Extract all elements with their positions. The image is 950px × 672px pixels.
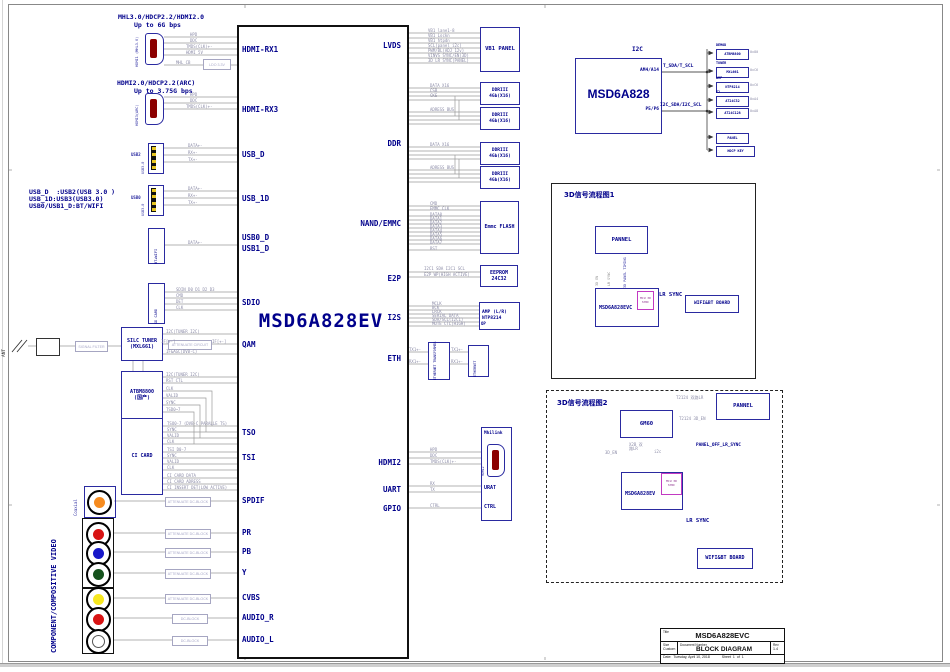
ant-label: ANT bbox=[2, 349, 7, 357]
pin-usb0-d: USB0_D bbox=[242, 233, 269, 242]
ddr-block-1: DDRIII4Gb(X16) bbox=[480, 82, 520, 105]
ci-card-block: CI CARD bbox=[121, 418, 163, 495]
pin-pr: PR bbox=[242, 528, 251, 537]
i2c-title: I2C bbox=[632, 46, 643, 53]
wire-label: SYNC bbox=[167, 427, 177, 432]
flow2-lr-sync-label: LR SYNC bbox=[686, 518, 709, 524]
i2c-device-ntp8214: NTP8214 bbox=[716, 82, 749, 93]
wire-label: CI CARD ADRESS bbox=[167, 479, 201, 484]
i2c-hdcp-key-block: HDCP KEY bbox=[716, 146, 755, 157]
pin-sdio: SDIO bbox=[242, 298, 260, 307]
hdmi1-tag: HDMI1 (MHL3.0) bbox=[135, 37, 139, 67]
i2c-device-at24c32: AT24C32 bbox=[716, 96, 749, 107]
wire-label: DATA7 bbox=[430, 240, 442, 245]
pin-spdif: SPDIF bbox=[242, 496, 265, 505]
attenuate-box-spdif: ATTENUATE DC-BLOCK bbox=[165, 497, 211, 507]
ddr-block-4: DDRIII4Gb(X16) bbox=[480, 166, 520, 189]
pin-pb: PB bbox=[242, 547, 251, 556]
pin-nand-emmc: NAND/EMMC bbox=[355, 219, 401, 228]
flow2-u2-label: X2B 双路LR bbox=[629, 443, 645, 452]
wire-label: EMMC CLK bbox=[430, 206, 449, 211]
wire-label: SYNC bbox=[166, 400, 176, 405]
document-cell: Document Number BLOCK DIAGRAM bbox=[678, 642, 770, 654]
i2c-device-atbm8800: ATBM8800 bbox=[716, 49, 749, 60]
wire-label: I2C(TUNER I2C) bbox=[166, 329, 200, 334]
sdcard-connector: SD CARD bbox=[148, 283, 165, 324]
pin-e2p: E2P bbox=[355, 274, 401, 283]
pin-tsi: TSI bbox=[242, 453, 256, 462]
pin-audio-r: AUDIO_R bbox=[242, 613, 274, 622]
wire-label: TMDS(CLK)+- bbox=[430, 459, 457, 464]
i2c-bus-a-label: T_SDA/T_SCL bbox=[663, 64, 693, 69]
attenuate-box-pb: ATTENUATE DC-BLOCK bbox=[165, 548, 211, 558]
i2c-device-addr: 0xA4 bbox=[750, 97, 758, 101]
pin-tso: TSO bbox=[242, 428, 256, 437]
antenna-input-box bbox=[36, 338, 60, 356]
mhilink-label: Mhilink bbox=[484, 431, 503, 436]
eeprom-block: EEPROM24C32 bbox=[480, 265, 518, 287]
wire-label: CTRL bbox=[430, 503, 440, 508]
wire-label: TX+- bbox=[188, 200, 198, 205]
flow1-down-label: 3D PANEL TIMING bbox=[623, 257, 627, 288]
title-block-row3: Date: Tuesday, April 10, 2018 Sheet 1 of… bbox=[661, 655, 784, 663]
wire-label: RX1+- bbox=[451, 359, 463, 364]
i2c-device-at24c128: AT24C128 bbox=[716, 108, 749, 119]
i2c-device-addr: 0xC6 bbox=[750, 68, 758, 72]
wire-label: RX bbox=[430, 481, 435, 486]
wire-label: E2P WP(HIGH ACTIVE) bbox=[424, 272, 470, 277]
wire-label: I2C1 SDA I2C1 SCL bbox=[424, 266, 465, 271]
rev-cell: Rev 1.4 bbox=[770, 642, 784, 654]
wires-left-connectors bbox=[164, 37, 237, 310]
wire-label: MUTE CTL(HIGH) bbox=[432, 321, 466, 326]
i2c-chip-block: MSD6A828 AM4/A14 P5/P6 bbox=[575, 58, 662, 134]
note-mhl-line1: MHL3.0/HDCP2.2/HDMI2.0 bbox=[118, 13, 204, 21]
pin-gpio: GPIO bbox=[355, 504, 401, 513]
flow2-title: 3D信号流程图2 bbox=[557, 398, 608, 408]
i2c-device-group: TUNER bbox=[716, 61, 726, 65]
hdmi2-connector bbox=[487, 444, 505, 477]
flow2-a1-label: T2124 双路LR bbox=[676, 395, 703, 401]
flow1-lr-sync-label: LR SYNC bbox=[659, 292, 682, 298]
pin-hdmi-rx3: HDMI-RX3 bbox=[242, 105, 278, 114]
wire-label: RX1+- bbox=[409, 359, 421, 364]
flow1-pannel-block: PANNEL bbox=[595, 226, 648, 254]
wire-label: TX1+- bbox=[409, 347, 421, 352]
hdmi1-connector bbox=[145, 33, 164, 65]
note-mhl-line2: Up to 6G bps bbox=[134, 21, 181, 29]
i2c-device-addr: 0xC6 bbox=[750, 83, 758, 87]
wire-label: IF[+-] bbox=[212, 339, 226, 344]
wire-label: CI INSERT DET(LOW ACTIVE) bbox=[167, 485, 227, 490]
size-cell: Size Custom bbox=[661, 642, 678, 654]
ethernet-transformer-block: ETHERNET TRANSFORMER bbox=[428, 342, 450, 380]
pin-eth: ETH bbox=[355, 354, 401, 363]
pin-ddr: DDR bbox=[355, 139, 401, 148]
ddr-block-2: DDRIII4Gb(X16) bbox=[480, 107, 520, 130]
schematic-sheet: MHL3.0/HDCP2.2/HDMI2.0 Up to 6G bps HDMI… bbox=[0, 0, 950, 672]
flow1-wifi-bt-block: WIFI&BT BOARD bbox=[685, 295, 739, 313]
wire-label: SDIN_D0 D1 D2 D3 bbox=[176, 287, 215, 292]
wire-label: HPD bbox=[430, 447, 437, 452]
i2c-bus-b-label: I2C_SDA/I2C_SCL bbox=[660, 103, 702, 108]
title-block-row1: Title MSD6A828EVC bbox=[661, 629, 784, 642]
flow2-a2-label: T2124 3D_EN bbox=[679, 416, 706, 421]
wire-label: TX bbox=[430, 487, 435, 492]
i2c-pin-a: AM4/A14 bbox=[640, 68, 659, 73]
usb0-pins bbox=[151, 188, 156, 212]
wire-label: IF&AGC(DVB-C) bbox=[166, 349, 197, 354]
flow2-mcu-sync-block: MCU 3D SYNC bbox=[661, 473, 682, 495]
wire-label: I2C(TUNER I2C) bbox=[166, 372, 200, 377]
antenna-icon bbox=[12, 340, 27, 352]
wire-label: DATA+- bbox=[188, 240, 202, 245]
wire-label: CLK bbox=[176, 305, 183, 310]
wire-label: RX+- bbox=[188, 150, 198, 155]
i2c-chip-label: MSD6A828 bbox=[576, 87, 661, 101]
pin-hdmi2: HDMI2 bbox=[355, 458, 401, 467]
i2c-pin-b: P5/P6 bbox=[645, 107, 659, 112]
tuner-block: SILC TUNER(MXL661) bbox=[121, 327, 163, 361]
pin-audio-l: AUDIO_L bbox=[242, 635, 274, 644]
wire-label: HPD bbox=[190, 92, 197, 97]
usb0-tag: USB0 bbox=[131, 195, 141, 200]
attenuate-box-cvbs: ATTENUATE DC-BLOCK bbox=[165, 594, 211, 604]
document-number: BLOCK DIAGRAM bbox=[678, 646, 770, 653]
wire-label: TX+- bbox=[188, 157, 198, 162]
hdmi2-tag: HDMI2 bbox=[481, 466, 485, 476]
flow2-frc-block: 6M60 bbox=[620, 410, 673, 438]
coaxial-label: Coaxial bbox=[73, 499, 78, 516]
wire-label: TMDS(CLK)+- bbox=[186, 104, 213, 109]
wire-label: CLK bbox=[166, 386, 173, 391]
ethernet-block: ETHERNET bbox=[468, 345, 489, 377]
flow1-up2-label: LR SYNC bbox=[607, 272, 611, 286]
i2c-device-group: E2 bbox=[716, 90, 720, 94]
wire-label: CLK bbox=[167, 439, 174, 444]
hdmi3-tag: HDMI3(ARC) bbox=[135, 104, 139, 126]
pin-usb-d: USB_D bbox=[242, 150, 265, 159]
i2c-device-addr: 0x80 bbox=[750, 50, 758, 54]
wire-label: IF[+-] bbox=[161, 339, 175, 344]
wire-label: RST CTL bbox=[166, 378, 183, 383]
wire-label: CKE bbox=[430, 93, 437, 98]
flow2-pannel-block: PANNEL bbox=[716, 393, 770, 420]
i2c-device-group: DEMOD bbox=[716, 43, 726, 47]
dcblock-box-audio-l: DC-BLOCK bbox=[172, 636, 208, 646]
wire-label: TSI D0-7 bbox=[167, 447, 186, 452]
wire-label: VALID bbox=[167, 459, 179, 464]
signal-filter-box: SIGNAL FILTER bbox=[75, 341, 108, 352]
dcblock-box-audio-r: DC-BLOCK bbox=[172, 614, 208, 624]
wire-label: ADRESS BUS bbox=[430, 165, 454, 170]
wire-label: TSO0-7 (DVB-C PARALLE TS) bbox=[167, 421, 227, 426]
flow2-panel-off-label: PANEL_OFF_LR_SYNC bbox=[696, 443, 741, 448]
note-usb-line3: USB0/USB1_D:BT/WIFI bbox=[29, 202, 103, 210]
wire-label: 3D LR SYNC(PANEL) bbox=[428, 58, 469, 63]
hdmi3-connector bbox=[145, 93, 164, 125]
usb2-tag: USB2 bbox=[131, 152, 141, 157]
amp-op-label: OP bbox=[481, 321, 486, 326]
wire-label: DET bbox=[176, 299, 183, 304]
title-block-row2: Size Custom Document Number BLOCK DIAGRA… bbox=[661, 642, 784, 655]
wire-label: DATA+- bbox=[188, 143, 202, 148]
wire-label: MHL_CB bbox=[176, 60, 190, 65]
flow2-u3-label: i2c bbox=[654, 449, 661, 454]
usb0-connector bbox=[148, 185, 164, 216]
wire-label: TSD0~7 bbox=[166, 407, 180, 412]
pin-lvds: LVDS bbox=[355, 41, 401, 50]
wire-label: CMD bbox=[176, 293, 183, 298]
pin-cvbs: CVBS bbox=[242, 593, 260, 602]
audio-l-jack bbox=[86, 629, 111, 654]
date-value: Tuesday, April 10, 2018 bbox=[673, 655, 709, 663]
vb1-panel-block: VB1 PANEL bbox=[480, 27, 520, 72]
wire-label: HDMI_5V bbox=[186, 50, 203, 55]
wire-label: DDC bbox=[430, 453, 437, 458]
usb2-pins bbox=[151, 146, 156, 170]
pin-qam: QAM bbox=[242, 340, 256, 349]
spdif-jack bbox=[87, 490, 112, 515]
flow1-up1-label: 3D EN bbox=[595, 276, 599, 286]
mhilink-ctrl-pin: CTRL bbox=[484, 504, 496, 510]
emmc-flash-block: Emmc FLASH bbox=[480, 201, 519, 254]
pin-y: Y bbox=[242, 568, 247, 577]
wire-label: ADRESS BUS bbox=[430, 107, 454, 112]
attenuate-box-y: ATTENUATE DC-BLOCK bbox=[165, 569, 211, 579]
main-chip-outline bbox=[237, 25, 409, 659]
flow2-wifi-bt-block: WIFI&BT BOARD bbox=[697, 548, 753, 569]
wire-label: TX1+- bbox=[451, 347, 463, 352]
hdmi3-slot bbox=[150, 99, 157, 118]
component-video-label: COMPONENT/COMPOSITIVE VIDEO bbox=[50, 539, 58, 653]
wire-label: CI CARD DATA bbox=[167, 473, 196, 478]
wire-label: TMDS(CLK)+- bbox=[186, 44, 213, 49]
pin-usb1-d: USB1_D bbox=[242, 244, 269, 253]
btwifi-module: BT+WIFI bbox=[148, 228, 165, 264]
wire-label: RST bbox=[430, 246, 437, 251]
hdmi1-slot bbox=[150, 39, 157, 58]
note-arc-line2: Up to 3.75G bps bbox=[134, 87, 193, 95]
wire-label: DATA X16 bbox=[430, 142, 449, 147]
wire-label: DATA+- bbox=[188, 186, 202, 191]
pin-uart: UART bbox=[355, 485, 401, 494]
usb0-type: USB3.0 bbox=[141, 204, 145, 216]
flow1-box bbox=[551, 183, 756, 379]
i2c-device-group: AMP bbox=[716, 76, 722, 80]
wire-label: SYNC bbox=[167, 453, 177, 458]
wire-label: VALID bbox=[166, 393, 178, 398]
usb2-connector bbox=[148, 143, 164, 174]
usb2-type: USB3.0 bbox=[141, 162, 145, 174]
i2c-panel-block: PANEL bbox=[716, 133, 749, 144]
wire-label: HPD bbox=[190, 32, 197, 37]
y-jack bbox=[86, 562, 111, 587]
wire-label: CLK bbox=[167, 465, 174, 470]
hdmi2-slot bbox=[492, 450, 499, 470]
ldo-box: LDO 3.3V bbox=[203, 59, 231, 70]
title-block: Title MSD6A828EVC Size Custom Document N… bbox=[660, 628, 785, 664]
mhilink-urat-pin: URAT bbox=[484, 485, 496, 491]
flow2-u1-label: 3D_EN bbox=[605, 450, 617, 455]
pin-usb-1d: USB_1D bbox=[242, 194, 269, 203]
drawing-title: MSD6A828EVC bbox=[661, 631, 784, 640]
note-arc-line1: HDMI2.0/HDCP2.2(ARC) bbox=[117, 79, 195, 87]
pin-hdmi-rx1: HDMI-RX1 bbox=[242, 45, 278, 54]
wire-label: RX+- bbox=[188, 193, 198, 198]
flow1-mcu-sync-block: MCU 3D SYNC bbox=[637, 291, 654, 310]
demod-block: ATBM8800(国产) bbox=[121, 371, 163, 419]
i2c-device-addr: 0xA8 bbox=[750, 109, 758, 113]
attenuate-box-pr: ATTENUATE DC-BLOCK bbox=[165, 529, 211, 539]
pin-i2s: I2S bbox=[355, 313, 401, 322]
wire-label: DDC bbox=[190, 98, 197, 103]
flow1-title: 3D信号流程图1 bbox=[564, 190, 615, 200]
ddr-block-3: DDRIII4Gb(X16) bbox=[480, 142, 520, 165]
wire-label: VALID bbox=[167, 433, 179, 438]
wire-label: DDC bbox=[190, 38, 197, 43]
